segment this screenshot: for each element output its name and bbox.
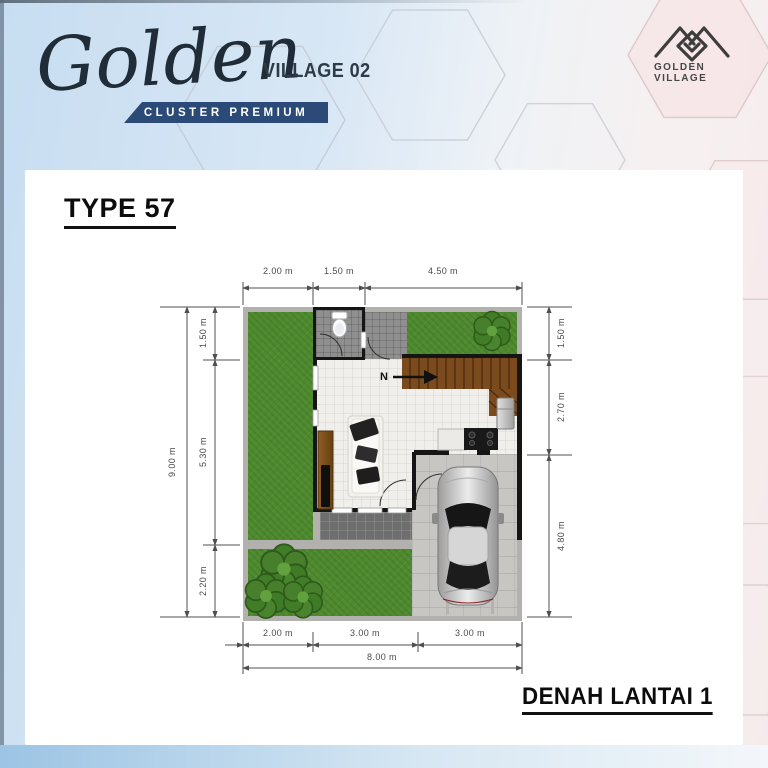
dim-left-2: 5.30 m (198, 437, 208, 467)
dim-bottom-2: 3.00 m (350, 628, 380, 638)
dim-right-3: 4.80 m (556, 521, 566, 551)
dim-bottom-total: 8.00 m (367, 652, 397, 662)
north-label: N (380, 371, 388, 383)
dim-top-1: 2.00 m (263, 266, 293, 276)
dim-top-2: 1.50 m (324, 266, 354, 276)
dim-left-3: 2.20 m (198, 566, 208, 596)
dim-top-3: 4.50 m (428, 266, 458, 276)
dim-bottom-3: 3.00 m (455, 628, 485, 638)
dim-right-1: 1.50 m (556, 318, 566, 348)
dim-bottom-1: 2.00 m (263, 628, 293, 638)
dim-right-2: 2.70 m (556, 392, 566, 422)
plan-caption: DENAH LANTAI 1 (522, 683, 713, 715)
dim-left-1: 1.50 m (198, 318, 208, 348)
dim-left-total: 9.00 m (167, 447, 177, 477)
brochure-page: Golden VILLAGE 02 CLUSTER PREMIUM GOLDEN… (0, 0, 768, 768)
